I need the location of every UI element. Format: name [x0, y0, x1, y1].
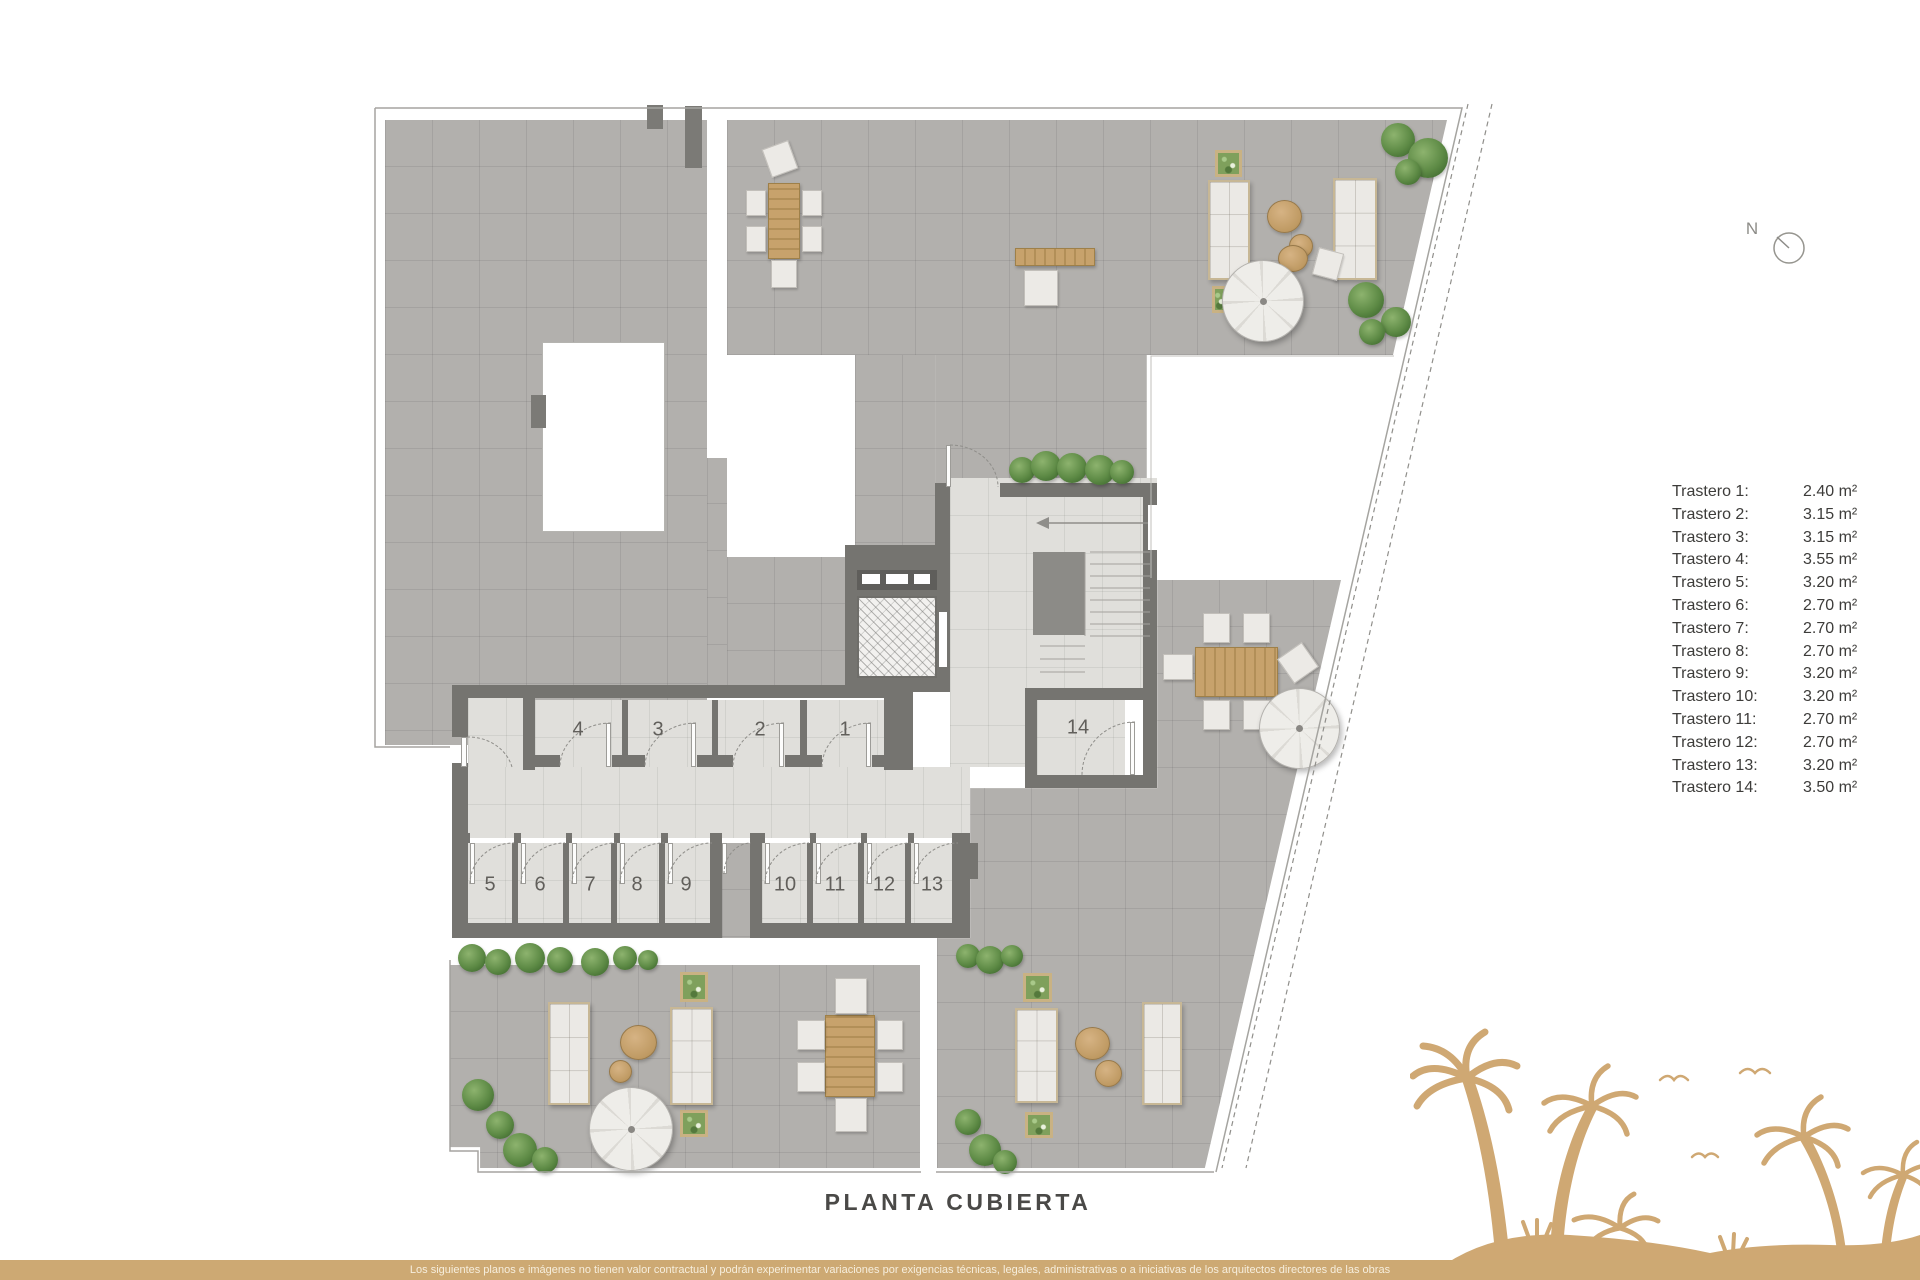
legend-item: Trastero 13:3.20 m² [1672, 755, 1857, 778]
stair-wall-slit [1148, 505, 1157, 550]
legend-item-value: 3.15 m² [1803, 529, 1857, 546]
bush [976, 946, 1004, 974]
umbrella-icon [1259, 688, 1340, 769]
wall-segment [535, 755, 560, 767]
wall-segment [872, 755, 884, 767]
wall-segment [884, 698, 913, 770]
chair [746, 190, 766, 216]
wall-segment [1000, 483, 1157, 497]
wall-segment [614, 833, 620, 843]
palm-trees-decoration [1410, 985, 1920, 1280]
chair [797, 1020, 825, 1050]
storeroom-number-label: 11 [825, 874, 846, 897]
round-side-table [1267, 200, 1302, 233]
terrace-strip [855, 355, 935, 560]
compass-needle-icon [1777, 237, 1789, 248]
sofa [1015, 1008, 1058, 1103]
wood-table [1195, 647, 1278, 697]
round-side-table [620, 1025, 657, 1060]
wall-segment [861, 833, 867, 843]
door-leaf [816, 843, 821, 884]
wall-segment [612, 755, 645, 767]
floor-plan-page: N [0, 0, 1920, 1280]
terrace-divider-gap [707, 108, 727, 458]
wall-segment [697, 755, 733, 767]
wall-segment [659, 843, 665, 923]
compass-circle [1774, 233, 1804, 263]
wall-segment [514, 833, 521, 843]
legend-item: Trastero 11:2.70 m² [1672, 709, 1857, 732]
chair [1243, 613, 1270, 643]
legend-item-value: 3.50 m² [1803, 779, 1857, 796]
door-leaf [866, 723, 871, 767]
sofa [670, 1007, 713, 1105]
door-leaf [946, 445, 951, 487]
legend-item-label: Trastero 4: [1672, 549, 1803, 572]
legend-item-value: 2.70 m² [1803, 711, 1857, 728]
bush [1395, 159, 1421, 185]
chair [835, 1098, 867, 1132]
wall-segment [858, 843, 864, 923]
wall-segment [661, 833, 668, 843]
stair-void [1033, 552, 1085, 635]
palm-fronds [1413, 1032, 1517, 1110]
legend-item: Trastero 2:3.15 m² [1672, 504, 1857, 527]
door-leaf [867, 843, 872, 884]
legend-item-label: Trastero 1: [1672, 481, 1803, 504]
legend-item: Trastero 12:2.70 m² [1672, 732, 1857, 755]
legend-item-value: 2.70 m² [1803, 597, 1857, 614]
storeroom-number-label: 14 [1067, 717, 1089, 740]
bush [638, 950, 658, 970]
door-leaf [765, 843, 770, 884]
chair [802, 190, 822, 216]
door-leaf [722, 843, 727, 874]
legend-item-label: Trastero 8: [1672, 641, 1803, 664]
grass-tufts [1523, 1220, 1747, 1253]
elevator-machine-slit [886, 574, 908, 584]
legend-item: Trastero 10:3.20 m² [1672, 686, 1857, 709]
bush [993, 1150, 1017, 1174]
sofa [1142, 1002, 1182, 1105]
legend-item-value: 2.40 m² [1803, 483, 1857, 500]
void-outline [1151, 356, 1394, 578]
footer-bar: Los siguientes planos e imágenes no tien… [0, 1260, 1920, 1280]
legend-item: Trastero 5:3.20 m² [1672, 572, 1857, 595]
planter [1025, 1112, 1053, 1138]
legend-item-label: Trastero 14: [1672, 777, 1803, 800]
wall-segment [452, 923, 722, 938]
legend-item-label: Trastero 7: [1672, 618, 1803, 641]
wall-segment [452, 763, 468, 938]
legend-item-value: 3.20 m² [1803, 688, 1857, 705]
door-leaf [620, 843, 625, 884]
storeroom-number-label: 5 [484, 874, 495, 897]
legend-item-value: 3.20 m² [1803, 574, 1857, 591]
legend-item-label: Trastero 2: [1672, 504, 1803, 527]
bush [485, 949, 511, 975]
bush [955, 1109, 981, 1135]
wall-segment [750, 923, 970, 938]
chair [1203, 700, 1230, 730]
bush [1359, 319, 1385, 345]
wood-table [768, 183, 800, 259]
corridor-west-end [468, 698, 523, 767]
bush [1057, 453, 1087, 483]
sofa [548, 1002, 590, 1105]
chair [797, 1062, 825, 1092]
legend-item-value: 3.20 m² [1803, 665, 1857, 682]
legend-item-value: 3.20 m² [1803, 757, 1857, 774]
umbrella-icon [589, 1087, 673, 1171]
round-side-table [1095, 1060, 1122, 1087]
footer-disclaimer: Los siguientes planos e imágenes no tien… [410, 1264, 1390, 1276]
wall-segment [966, 843, 978, 879]
birds-icon [1660, 1069, 1770, 1157]
legend-item-value: 2.70 m² [1803, 620, 1857, 637]
legend-item-label: Trastero 10: [1672, 686, 1803, 709]
legend-item: Trastero 7:2.70 m² [1672, 618, 1857, 641]
bush [547, 947, 573, 973]
wall-segment [452, 685, 468, 737]
door-leaf [779, 723, 784, 767]
chair [877, 1062, 903, 1092]
legend-item: Trastero 4:3.55 m² [1672, 549, 1857, 572]
wall-segment [905, 843, 911, 923]
door-leaf [461, 737, 467, 767]
wall-segment [908, 833, 914, 843]
storeroom-number-label: 9 [680, 874, 691, 897]
legend-item-label: Trastero 9: [1672, 663, 1803, 686]
legend: Trastero 1:2.40 m²Trastero 2:3.15 m²Tras… [1672, 481, 1857, 800]
planter [1023, 973, 1052, 1002]
storeroom-number-label: 1 [839, 719, 850, 742]
legend-item: Trastero 9:3.20 m² [1672, 663, 1857, 686]
wall-segment [452, 833, 470, 843]
legend-item-value: 3.55 m² [1803, 551, 1857, 568]
legend-item: Trastero 6:2.70 m² [1672, 595, 1857, 618]
legend-item-label: Trastero 12: [1672, 732, 1803, 755]
bush [1381, 307, 1411, 337]
door-leaf [521, 843, 526, 884]
elevator-machine-slit [914, 574, 930, 584]
legend-item: Trastero 1:2.40 m² [1672, 481, 1857, 504]
skylight-block [531, 395, 546, 428]
corridor [467, 767, 970, 838]
bush [515, 943, 545, 973]
door-leaf [1130, 722, 1135, 775]
storeroom-number-label: 10 [774, 874, 796, 897]
bush [462, 1079, 494, 1111]
chair [746, 226, 766, 252]
door-leaf [668, 843, 673, 884]
bush [1348, 282, 1384, 318]
legend-item-label: Trastero 13: [1672, 755, 1803, 778]
legend-item-value: 2.70 m² [1803, 643, 1857, 660]
terrace-patch-1 [707, 457, 727, 687]
wall-segment [611, 843, 617, 923]
legend-item-label: Trastero 3: [1672, 527, 1803, 550]
chair [771, 260, 797, 288]
compass-north-label: N [1746, 219, 1758, 238]
bush [613, 946, 637, 970]
door-leaf [572, 843, 577, 884]
door-leaf [470, 843, 475, 884]
legend-item: Trastero 3:3.15 m² [1672, 527, 1857, 550]
storeroom-number-label: 3 [652, 719, 663, 742]
bush [458, 944, 486, 972]
legend-item-label: Trastero 11: [1672, 709, 1803, 732]
chair [1163, 654, 1193, 680]
elevator-machine-slit [862, 574, 880, 584]
terrace-patch-2 [727, 557, 855, 687]
legend-item-label: Trastero 6: [1672, 595, 1803, 618]
planter [680, 1110, 708, 1137]
wall-segment [1025, 688, 1143, 700]
wall-segment [785, 755, 822, 767]
round-side-table [1075, 1027, 1110, 1060]
door-leaf [606, 723, 611, 767]
elevator-shaft [857, 596, 937, 678]
legend-item-value: 2.70 m² [1803, 734, 1857, 751]
wall-segment [566, 833, 572, 843]
storeroom-number-label: 2 [754, 719, 765, 742]
compass: N [1746, 219, 1804, 263]
storeroom-number-label: 6 [534, 874, 545, 897]
skylight [542, 342, 665, 532]
wood-table [825, 1015, 875, 1097]
wood-table [1015, 248, 1095, 266]
storeroom-number-label: 12 [873, 874, 895, 897]
chimney [685, 106, 702, 168]
storeroom-number-label: 7 [584, 874, 595, 897]
elevator-door-slit [939, 612, 947, 667]
wall-segment [523, 687, 535, 770]
umbrella-icon [1222, 260, 1304, 342]
chair [1203, 613, 1230, 643]
bush [581, 948, 609, 976]
legend-item: Trastero 8:2.70 m² [1672, 641, 1857, 664]
planter [680, 972, 708, 1002]
corridor-link [950, 688, 1027, 767]
round-side-table [609, 1060, 632, 1083]
planter [1215, 150, 1242, 177]
door-leaf [691, 723, 696, 767]
wall-segment [512, 843, 518, 923]
chair [1024, 270, 1058, 306]
wall-segment [810, 833, 816, 843]
chair [877, 1020, 903, 1050]
storeroom-number-label: 4 [572, 719, 583, 742]
wall-segment [935, 483, 950, 558]
bush [1001, 945, 1023, 967]
storeroom-number-label: 8 [631, 874, 642, 897]
legend-item-value: 3.15 m² [1803, 506, 1857, 523]
door-leaf [914, 843, 919, 884]
legend-item: Trastero 14:3.50 m² [1672, 777, 1857, 800]
chimney [647, 105, 663, 129]
bush [1110, 460, 1134, 484]
chair [802, 226, 822, 252]
storeroom-number-label: 13 [921, 874, 943, 897]
wall-segment [1025, 775, 1155, 788]
bush [532, 1147, 558, 1173]
legend-item-label: Trastero 5: [1672, 572, 1803, 595]
page-title: PLANTA CUBIERTA [658, 1189, 1258, 1216]
chair [835, 978, 867, 1014]
wall-segment [563, 843, 569, 923]
wall-segment [807, 843, 813, 923]
terrace-top-right [727, 120, 1447, 490]
